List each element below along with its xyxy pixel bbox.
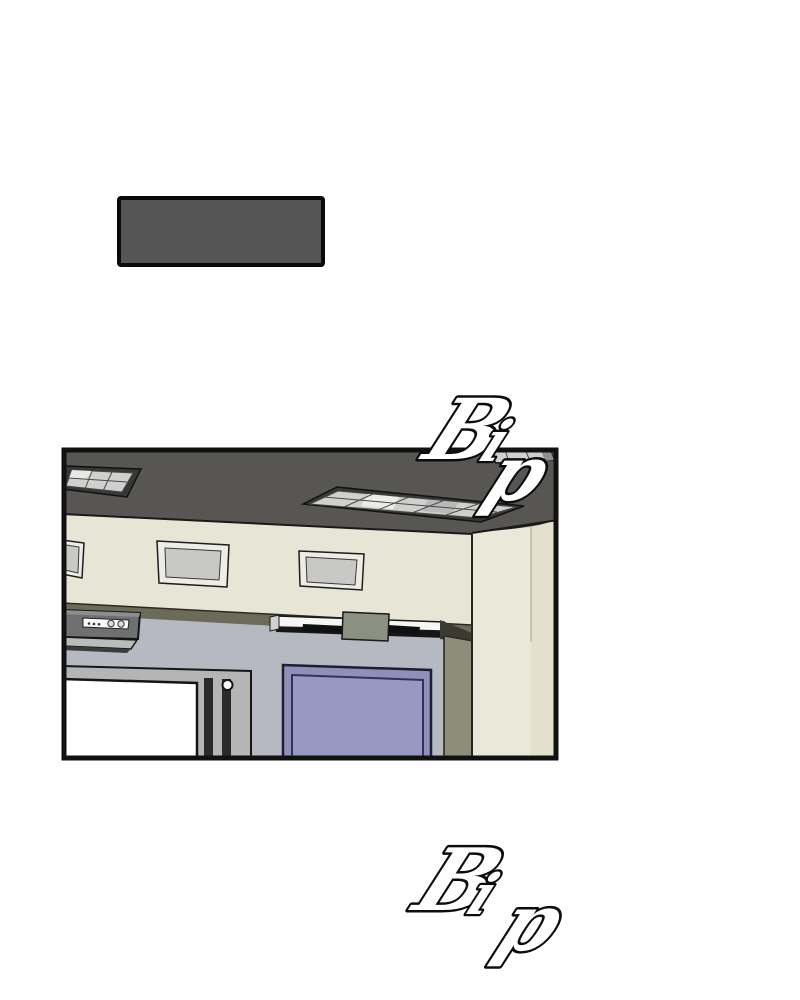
door-panel [292,675,423,760]
track-roller-knob [223,680,233,690]
fluorescent-mount [342,612,389,641]
track-strip-left [204,678,213,760]
whiteboard-surface [62,679,197,760]
whiteboard [62,666,251,760]
caption-box-rect [119,198,323,265]
sfx-bip-bottom: B i p [398,830,579,969]
track-strip-right [222,679,231,760]
purple-door [283,665,431,760]
caption-box [119,198,323,265]
comic-page: B i p B i p [0,0,800,1000]
sfx-bottom-letter-b: B [398,830,519,931]
clerestory-window-right [299,551,364,590]
sfx-bottom-letter-p: p [484,878,579,970]
clerestory-window-middle [157,541,229,587]
column-shadow-face [444,636,472,760]
air-conditioner [62,610,140,653]
column-front-face [472,527,531,760]
